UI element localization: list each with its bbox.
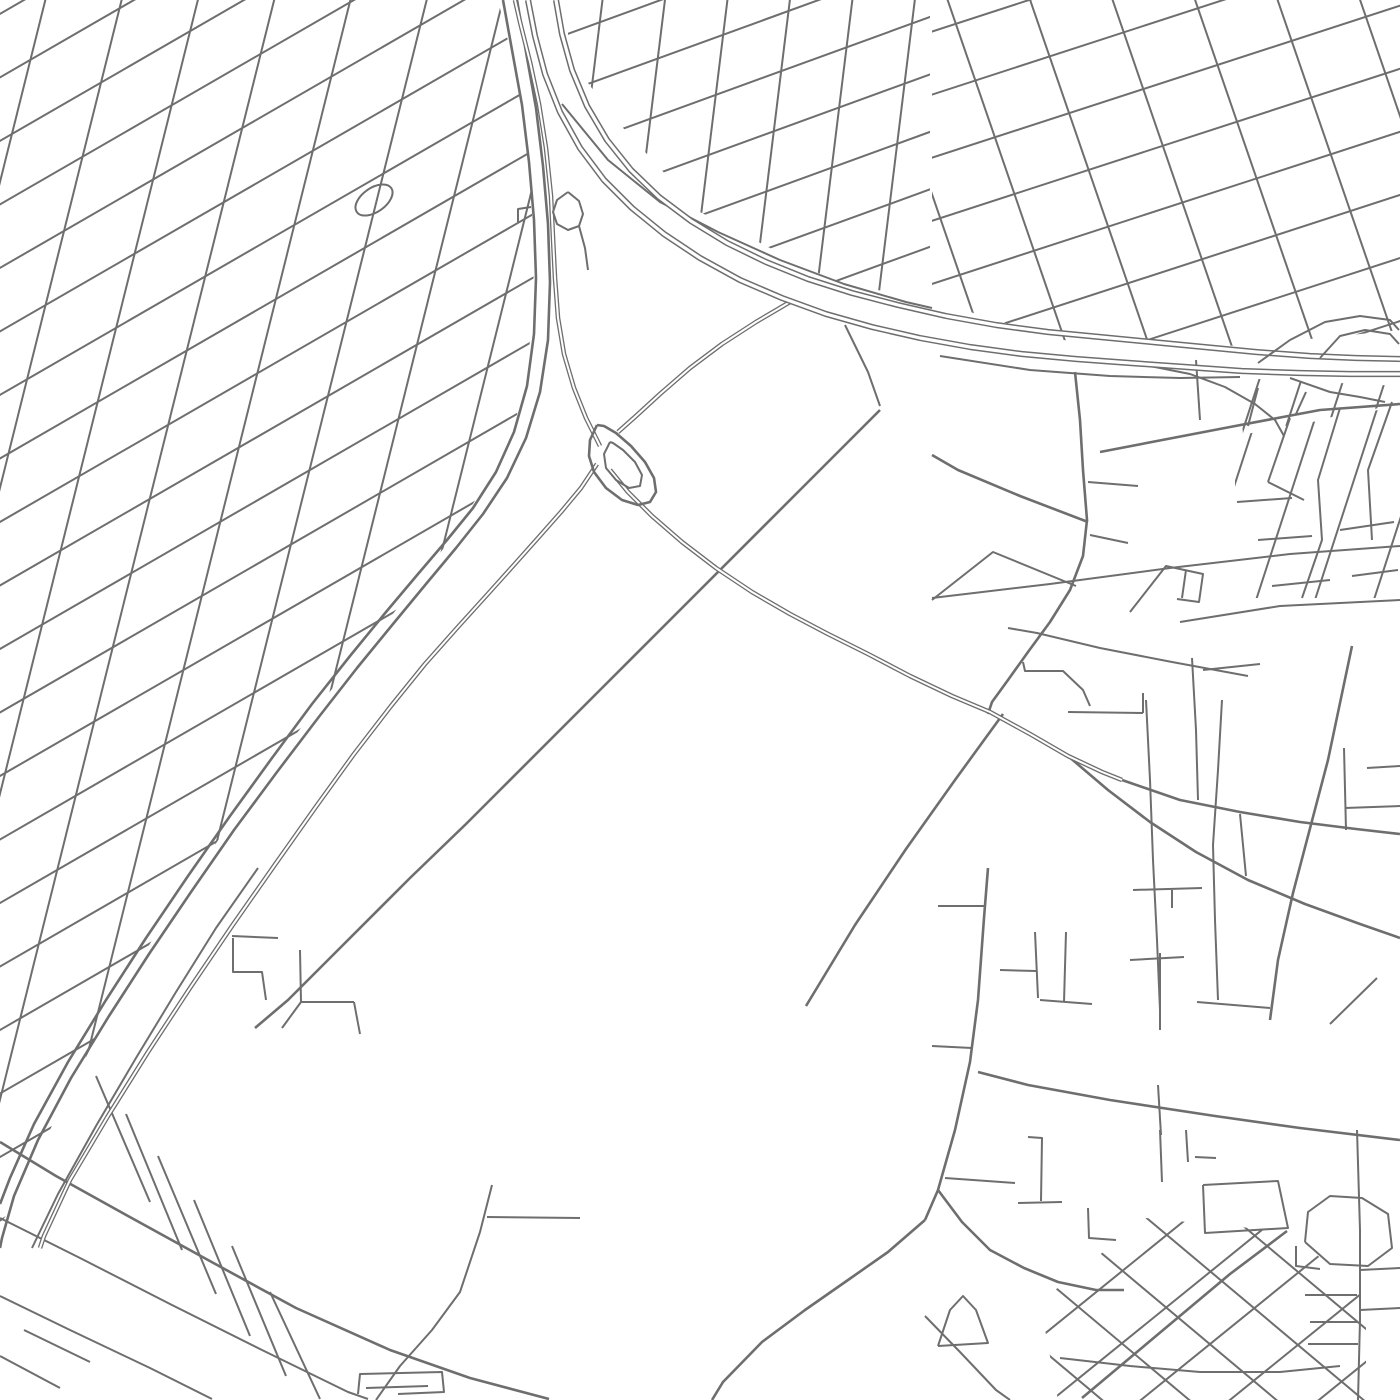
street-map-svg bbox=[0, 0, 1400, 1400]
map-canvas bbox=[0, 0, 1400, 1400]
map-screenshot: { "map": { "description": "minimalist-st… bbox=[0, 0, 1400, 1400]
